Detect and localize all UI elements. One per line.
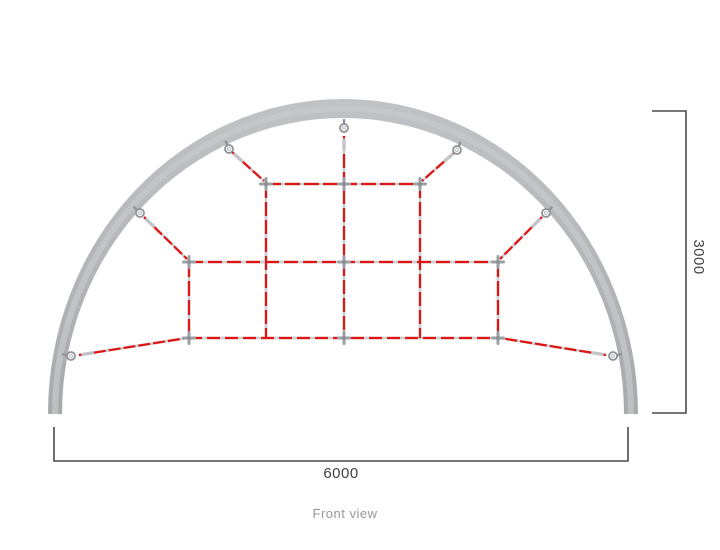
dimension-height-label: 3000 [691, 227, 707, 287]
net-connector [339, 179, 350, 190]
connector-center [187, 260, 191, 264]
shackle-ring [340, 124, 348, 132]
net-connector [339, 257, 350, 268]
view-caption: Front view [270, 506, 420, 521]
rope-ferrule [445, 155, 452, 161]
dimension-width-label: 6000 [281, 465, 401, 482]
shackle-ring [453, 146, 461, 154]
connector-center [342, 260, 346, 264]
dimension-line-height [652, 111, 686, 413]
shackle-ring [609, 352, 617, 360]
shackle-ring [542, 209, 550, 217]
rope-ferrule [235, 155, 242, 161]
connector-center [496, 336, 500, 340]
net-connector [184, 333, 195, 344]
connector-center [342, 182, 346, 186]
rope-ferrule [593, 353, 602, 354]
shackle-ring [225, 145, 233, 153]
connector-center [342, 336, 346, 340]
connector-center [496, 260, 500, 264]
rope-ferrule [83, 353, 92, 354]
rope-ferrule [533, 220, 539, 226]
connector-center [264, 182, 268, 186]
shackle-icon [340, 119, 348, 132]
shackle-ring [136, 209, 144, 217]
rope-ferrule [147, 220, 153, 226]
connector-center [187, 336, 191, 340]
rope-segment [500, 338, 606, 355]
dimension-line-width [54, 427, 628, 461]
shackle-icon [453, 142, 461, 154]
net-connector [339, 333, 350, 344]
rope-segment [79, 338, 187, 355]
net-connector [493, 333, 504, 344]
connector-center [418, 182, 422, 186]
drawing-page: 6000 3000 Front view [0, 0, 720, 550]
shackle-ring [67, 352, 75, 360]
